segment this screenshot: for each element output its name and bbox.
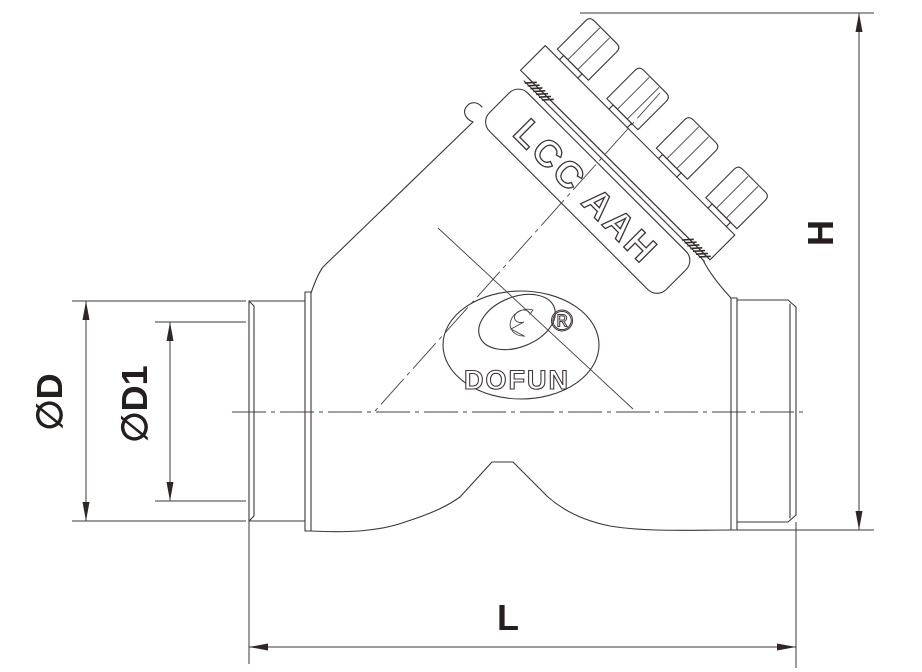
bolt-3 — [652, 116, 720, 184]
right-socket-inner-face — [731, 298, 737, 530]
dim-d-arrow-up-icon — [83, 301, 90, 320]
dim-h-arrow-up-icon — [856, 13, 863, 32]
bolt-2 — [603, 66, 671, 134]
dim-h-arrow-down-icon — [856, 511, 863, 530]
dim-d-label: ∅D — [29, 373, 70, 430]
dim-l-label: L — [497, 597, 519, 638]
bolt-1 — [553, 17, 621, 85]
dimension-height: H — [580, 13, 874, 530]
dim-d1-extension-lines — [155, 322, 246, 501]
body-bottom-profile — [311, 462, 731, 532]
dim-l-arrow-left-icon — [249, 644, 268, 651]
neck-right-edge — [703, 260, 731, 298]
logo-g-mark-icon — [510, 309, 533, 336]
dim-d-arrow-down-icon — [83, 502, 90, 521]
gasket-hatch-right — [682, 234, 711, 263]
dimension-length: L — [249, 521, 796, 668]
dofun-logo: ® DOFUN — [443, 284, 599, 399]
dim-d1-label: ∅D1 — [114, 365, 155, 442]
drawing-canvas: LCC AAH — [0, 0, 922, 672]
dim-d-extension-lines — [72, 301, 246, 521]
right-socket-weld-end — [731, 298, 796, 530]
neck-left-edge — [311, 122, 473, 293]
right-socket-edges — [737, 300, 788, 522]
flange-corner-radius — [465, 103, 482, 122]
valve-technical-drawing: LCC AAH — [0, 0, 922, 672]
left-socket-weld-end — [249, 292, 311, 531]
bolt-4 — [702, 165, 770, 233]
left-socket-edges — [249, 301, 305, 521]
registered-mark-icon: ® — [551, 305, 573, 338]
dim-d1-arrow-up-icon — [167, 322, 174, 341]
dim-d1-arrow-down-icon — [167, 482, 174, 501]
bonnet-assembly: LCC AAH — [475, 9, 772, 306]
valve-body — [249, 103, 796, 532]
right-socket-chamfer — [788, 300, 796, 522]
logo-text: DOFUN — [464, 365, 570, 395]
dim-h-label: H — [800, 220, 841, 246]
left-socket-inner-face — [305, 292, 311, 531]
gasket-hatch-left — [525, 77, 554, 106]
left-socket-chamfer — [249, 301, 254, 521]
dimension-bore-diameter: ∅D1 — [114, 322, 246, 501]
dim-l-arrow-right-icon — [777, 644, 796, 651]
